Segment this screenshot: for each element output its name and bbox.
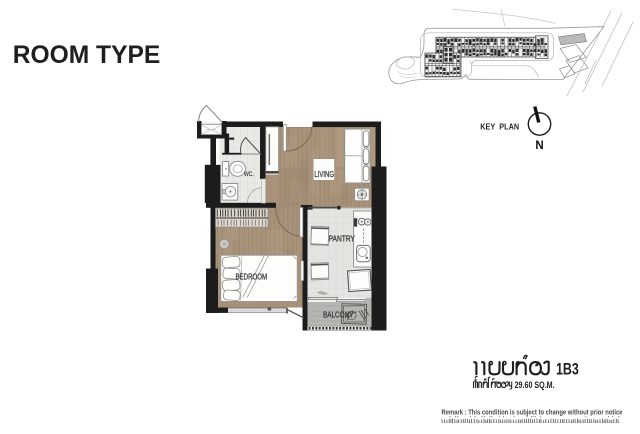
svg-text:29.60 SQ.M.: 29.60 SQ.M. [515, 380, 555, 390]
svg-text:KEY PLAN: KEY PLAN [480, 122, 519, 132]
svg-text:BEDROOM: BEDROOM [236, 272, 268, 281]
svg-text:LIVING: LIVING [314, 170, 334, 179]
svg-text:Remark : This condition is sub: Remark : This condition is subject to ch… [442, 410, 623, 417]
svg-text:ROOM TYPE: ROOM TYPE [13, 41, 161, 69]
svg-text:N: N [535, 140, 543, 152]
svg-text:1B3: 1B3 [556, 361, 579, 379]
svg-text:BALCONY: BALCONY [323, 310, 354, 319]
svg-text:WC.: WC. [244, 171, 254, 178]
svg-text:PANTRY: PANTRY [329, 234, 356, 243]
